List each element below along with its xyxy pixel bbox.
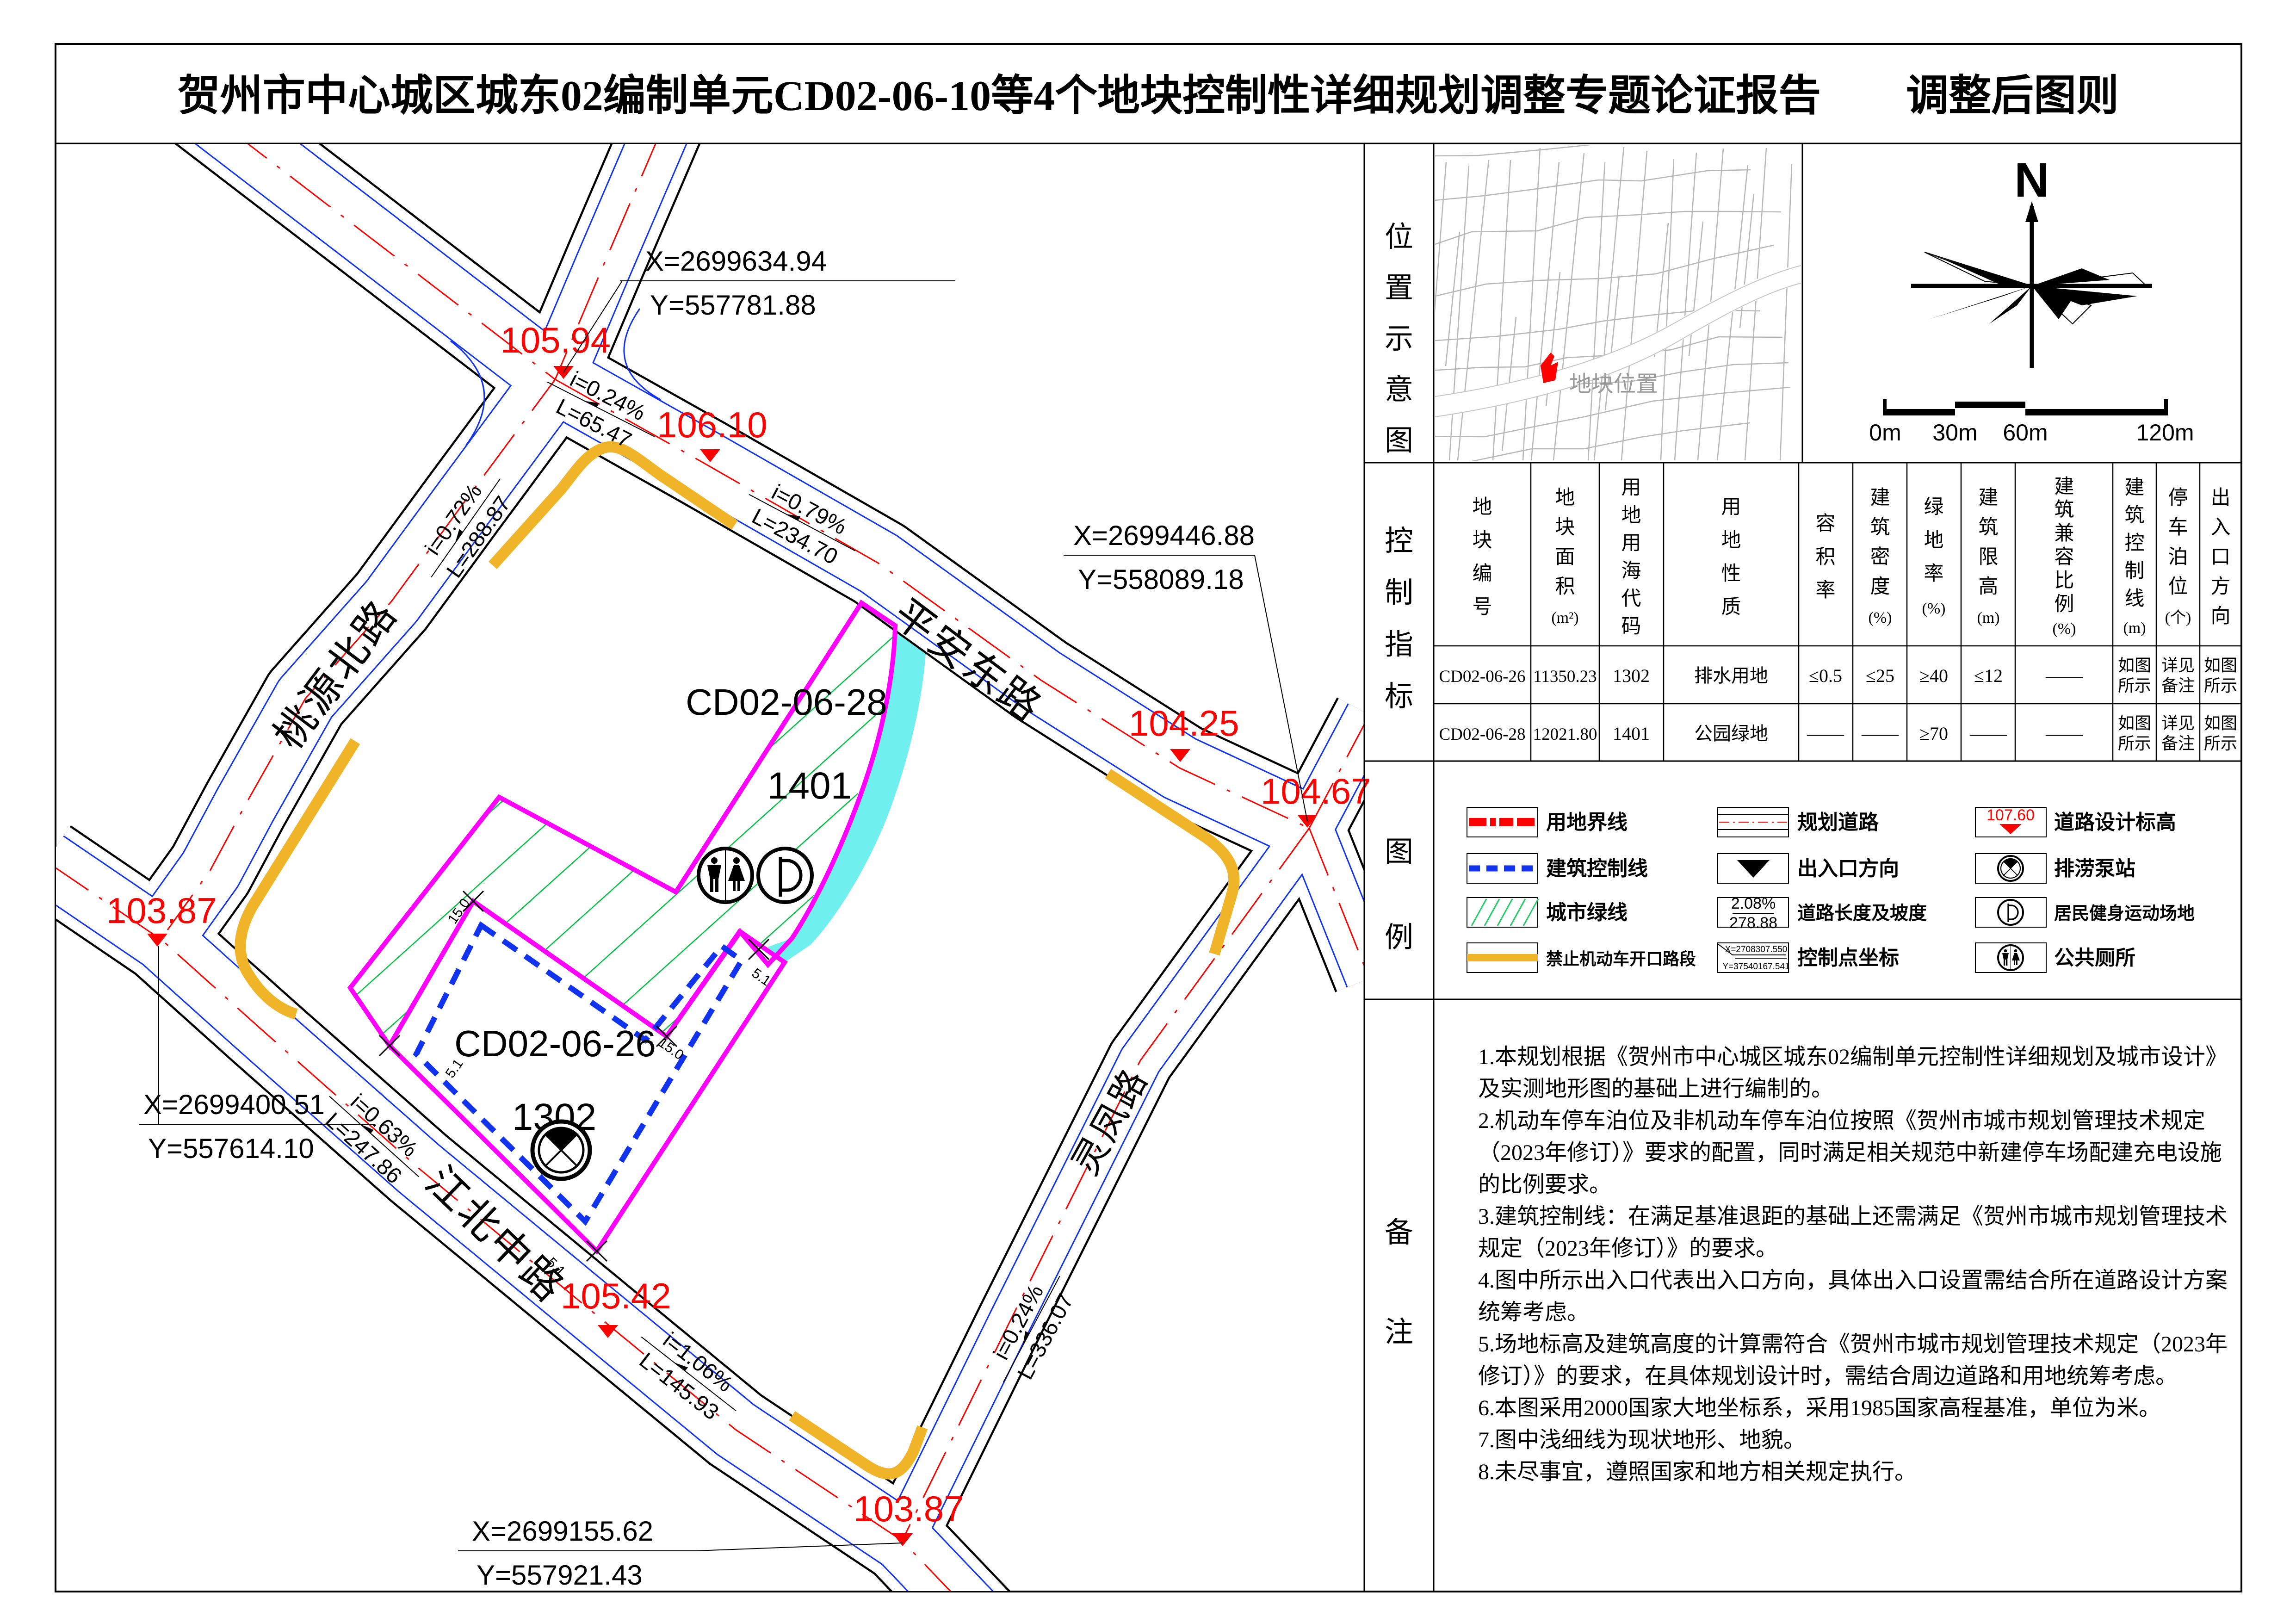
svg-text:60m: 60m — [2003, 420, 2048, 446]
svg-text:105.94: 105.94 — [500, 320, 611, 360]
svg-text:出入口方向: 出入口方向 — [1797, 857, 1899, 880]
svg-text:建筑控制线: 建筑控制线 — [1546, 857, 1648, 880]
svg-text:泊: 泊 — [2168, 546, 2188, 568]
svg-text:地: 地 — [1621, 505, 1641, 527]
svg-text:5.场地标高及建筑高度的计算需符合《贺州市城市规划管理技术规: 5.场地标高及建筑高度的计算需符合《贺州市城市规划管理技术规定（2023年 — [1478, 1332, 2228, 1357]
svg-text:率: 率 — [1924, 563, 1944, 585]
svg-text:(个): (个) — [2165, 609, 2191, 626]
svg-text:规定（2023年修订）》的要求。: 规定（2023年修订）》的要求。 — [1478, 1236, 1778, 1261]
svg-text:代: 代 — [1621, 588, 1641, 610]
svg-text:如图: 如图 — [2118, 714, 2151, 732]
svg-text:——: —— — [1807, 723, 1844, 744]
svg-text:口: 口 — [2211, 546, 2231, 568]
svg-text:块: 块 — [1473, 530, 1492, 551]
svg-text:4.图中所示出入口代表出入口方向，具体出入口设置需结合所在道: 4.图中所示出入口代表出入口方向，具体出入口设置需结合所在道路设计方案 — [1478, 1268, 2228, 1293]
svg-text:CD02-06-28: CD02-06-28 — [686, 681, 887, 723]
svg-text:积: 积 — [1555, 576, 1575, 598]
svg-text:位: 位 — [1385, 222, 1413, 253]
svg-text:道路长度及坡度: 道路长度及坡度 — [1797, 903, 1927, 923]
svg-text:兼: 兼 — [2055, 523, 2074, 545]
svg-text:建: 建 — [1979, 487, 1999, 509]
svg-text:所示: 所示 — [2118, 676, 2151, 695]
svg-text:用地界线: 用地界线 — [1546, 811, 1628, 834]
svg-text:规划道路: 规划道路 — [1797, 811, 1879, 834]
svg-text:12021.80: 12021.80 — [1533, 725, 1597, 744]
svg-text:11350.23: 11350.23 — [1533, 667, 1597, 686]
svg-text:N: N — [2014, 153, 2049, 207]
svg-text:如图: 如图 — [2204, 714, 2237, 732]
svg-text:入: 入 — [2211, 517, 2231, 539]
svg-text:贺州市中心城区城东02编制单元CD02-06-10等4个地块: 贺州市中心城区城东02编制单元CD02-06-10等4个地块控制性详细规划调整专… — [178, 72, 2119, 119]
svg-text:块: 块 — [1555, 517, 1575, 539]
svg-text:（2023年修订）》要求的配置，同时满足相关规范中新建停车场: （2023年修订）》要求的配置，同时满足相关规范中新建停车场配建充电设施 — [1478, 1140, 2222, 1165]
svg-text:向: 向 — [2211, 606, 2231, 627]
svg-text:105.42: 105.42 — [561, 1276, 671, 1316]
svg-text:所示: 所示 — [2118, 734, 2151, 753]
svg-text:(%): (%) — [1869, 609, 1892, 626]
svg-text:停: 停 — [2168, 487, 2188, 509]
svg-text:度: 度 — [1870, 576, 1890, 598]
svg-text:278.88: 278.88 — [1729, 914, 1777, 932]
svg-text:注: 注 — [1385, 1317, 1413, 1348]
svg-text:控: 控 — [2125, 533, 2145, 554]
svg-text:120m: 120m — [2136, 420, 2194, 446]
svg-text:置: 置 — [1385, 273, 1413, 304]
svg-text:Y=557921.43: Y=557921.43 — [477, 1560, 643, 1591]
svg-text:X=2699634.94: X=2699634.94 — [645, 246, 827, 277]
svg-text:如图: 如图 — [2118, 656, 2151, 675]
svg-text:(m): (m) — [1977, 609, 1999, 626]
svg-text:用: 用 — [1621, 533, 1641, 554]
svg-text:限: 限 — [1979, 546, 1999, 568]
svg-text:居民健身运动场地: 居民健身运动场地 — [2054, 904, 2195, 923]
svg-text:地: 地 — [1473, 496, 1492, 518]
svg-text:公园绿地: 公园绿地 — [1694, 723, 1768, 744]
svg-text:Y=557614.10: Y=557614.10 — [148, 1133, 314, 1164]
svg-text:容: 容 — [1816, 513, 1836, 535]
svg-text:绿: 绿 — [1924, 496, 1944, 518]
svg-text:104.67: 104.67 — [1261, 771, 1371, 811]
svg-text:≥70: ≥70 — [1919, 723, 1948, 744]
svg-text:城市绿线: 城市绿线 — [1546, 901, 1628, 924]
svg-text:例: 例 — [2055, 594, 2074, 615]
svg-text:7.图中浅细线为现状地形、地貌。: 7.图中浅细线为现状地形、地貌。 — [1478, 1428, 1806, 1452]
svg-text:Y=558089.18: Y=558089.18 — [1078, 564, 1244, 595]
svg-text:排水用地: 排水用地 — [1694, 665, 1768, 686]
svg-text:位: 位 — [2168, 576, 2188, 598]
svg-text:103.87: 103.87 — [106, 890, 217, 931]
svg-text:图: 图 — [1385, 836, 1413, 868]
svg-text:1401: 1401 — [767, 765, 852, 807]
svg-text:CD02-06-28: CD02-06-28 — [1439, 725, 1525, 744]
svg-text:Y=37540167.541: Y=37540167.541 — [1722, 962, 1789, 972]
svg-text:(m): (m) — [2123, 619, 2146, 637]
svg-text:0m: 0m — [1869, 420, 1901, 446]
svg-text:8.未尽事宜，遵照国家和地方相关规定执行。: 8.未尽事宜，遵照国家和地方相关规定执行。 — [1478, 1460, 1917, 1484]
svg-text:标: 标 — [1385, 681, 1413, 712]
svg-text:(m²): (m²) — [1551, 609, 1578, 626]
svg-text:及实测地形图的基础上进行编制的。: 及实测地形图的基础上进行编制的。 — [1478, 1077, 1833, 1101]
svg-text:X=2699446.88: X=2699446.88 — [1073, 520, 1255, 551]
svg-text:筑: 筑 — [1979, 517, 1999, 539]
svg-text:道路设计标高: 道路设计标高 — [2054, 811, 2176, 834]
svg-text:车: 车 — [2168, 517, 2188, 539]
svg-text:比: 比 — [2055, 570, 2074, 592]
svg-text:控: 控 — [1385, 526, 1413, 557]
svg-text:2.机动车停车泊位及非机动车停车泊位按照《贺州市城市规划管理: 2.机动车停车泊位及非机动车停车泊位按照《贺州市城市规划管理技术规定 — [1478, 1109, 2205, 1133]
svg-text:用: 用 — [1721, 496, 1741, 518]
svg-text:质: 质 — [1721, 596, 1741, 618]
svg-text:统筹考虑。: 统筹考虑。 — [1478, 1300, 1589, 1325]
svg-text:——: —— — [1969, 723, 2007, 744]
svg-text:1302: 1302 — [1613, 665, 1650, 686]
svg-text:X=2708307.550: X=2708307.550 — [1725, 945, 1788, 954]
svg-text:≤25: ≤25 — [1866, 665, 1894, 686]
svg-text:指: 指 — [1385, 629, 1413, 661]
svg-text:积: 积 — [1816, 546, 1836, 568]
svg-text:——: —— — [2045, 665, 2083, 686]
svg-text:编: 编 — [1473, 563, 1492, 585]
svg-text:建: 建 — [2125, 477, 2145, 499]
svg-text:107.60: 107.60 — [1987, 806, 2035, 824]
svg-text:例: 例 — [1385, 922, 1413, 954]
svg-text:修订）》的要求，在具体规划设计时，需结合周边道路和用地统筹考: 修订）》的要求，在具体规划设计时，需结合周边道路和用地统筹考虑。 — [1478, 1364, 2178, 1388]
svg-text:X=2699155.62: X=2699155.62 — [472, 1516, 653, 1547]
svg-text:制: 制 — [2125, 560, 2145, 582]
svg-text:地: 地 — [1924, 530, 1944, 551]
svg-text:3.建筑控制线：在满足基准退距的基础上还需满足《贺州市城市规: 3.建筑控制线：在满足基准退距的基础上还需满足《贺州市城市规划管理技术 — [1478, 1204, 2228, 1229]
svg-text:的比例要求。: 的比例要求。 — [1478, 1172, 1611, 1197]
svg-text:CD02-06-26: CD02-06-26 — [1439, 667, 1525, 686]
svg-text:号: 号 — [1473, 596, 1492, 618]
svg-text:(%): (%) — [2053, 620, 2076, 638]
svg-text:如图: 如图 — [2204, 656, 2237, 675]
svg-text:制: 制 — [1385, 577, 1413, 609]
svg-text:104.25: 104.25 — [1129, 703, 1239, 743]
svg-text:容: 容 — [2055, 546, 2074, 568]
svg-text:备注: 备注 — [2161, 676, 2195, 695]
svg-text:备注: 备注 — [2161, 734, 2195, 753]
svg-text:Y=557781.88: Y=557781.88 — [650, 290, 816, 321]
svg-text:≤0.5: ≤0.5 — [1809, 665, 1842, 686]
svg-text:——: —— — [1861, 723, 1899, 744]
svg-text:地块位置: 地块位置 — [1569, 372, 1658, 396]
svg-text:103.87: 103.87 — [854, 1488, 964, 1529]
svg-text:图: 图 — [1385, 425, 1413, 457]
svg-text:30m: 30m — [1932, 420, 1977, 446]
svg-text:线: 线 — [2125, 588, 2145, 610]
svg-text:——: —— — [2045, 723, 2083, 744]
svg-text:出: 出 — [2211, 487, 2231, 509]
svg-text:示: 示 — [1385, 323, 1413, 355]
svg-text:海: 海 — [1621, 560, 1641, 582]
svg-text:控制点坐标: 控制点坐标 — [1797, 947, 1899, 969]
svg-text:码: 码 — [1621, 616, 1641, 638]
svg-text:所示: 所示 — [2204, 734, 2237, 753]
svg-text:(%): (%) — [1922, 600, 1946, 617]
svg-text:备: 备 — [1385, 1217, 1413, 1249]
svg-text:1401: 1401 — [1613, 723, 1650, 744]
svg-text:所示: 所示 — [2204, 676, 2237, 695]
svg-text:地: 地 — [1555, 487, 1575, 509]
svg-text:公共厕所: 公共厕所 — [2054, 947, 2135, 969]
svg-text:6.本图采用2000国家大地坐标系，采用1985国家高程基准: 6.本图采用2000国家大地坐标系，采用1985国家高程基准，单位为米。 — [1478, 1396, 2161, 1420]
svg-text:详见: 详见 — [2161, 714, 2195, 732]
svg-text:≥40: ≥40 — [1919, 665, 1948, 686]
svg-text:性: 性 — [1721, 563, 1741, 585]
svg-text:106.10: 106.10 — [657, 404, 767, 445]
svg-text:用: 用 — [1621, 477, 1641, 499]
svg-text:意: 意 — [1385, 374, 1413, 406]
svg-text:率: 率 — [1816, 579, 1836, 601]
svg-text:筑: 筑 — [2055, 499, 2074, 521]
svg-text:详见: 详见 — [2161, 656, 2195, 675]
svg-text:密: 密 — [1870, 546, 1890, 568]
svg-text:建: 建 — [2055, 476, 2074, 498]
svg-text:X=2699400.51: X=2699400.51 — [143, 1089, 325, 1120]
svg-text:CD02-06-26: CD02-06-26 — [454, 1023, 656, 1064]
svg-text:方: 方 — [2211, 576, 2231, 598]
svg-text:≤12: ≤12 — [1974, 665, 2003, 686]
svg-text:2.08%: 2.08% — [1731, 895, 1776, 912]
svg-text:筑: 筑 — [1870, 517, 1890, 539]
svg-text:筑: 筑 — [2125, 505, 2145, 527]
svg-text:面: 面 — [1555, 546, 1575, 568]
svg-text:禁止机动车开口路段: 禁止机动车开口路段 — [1546, 949, 1696, 968]
svg-text:地: 地 — [1721, 530, 1741, 551]
svg-text:高: 高 — [1979, 576, 1999, 598]
svg-text:1.本规划根据《贺州市中心城区城东02编制单元控制性详细规划: 1.本规划根据《贺州市中心城区城东02编制单元控制性详细规划及城市设计》 — [1478, 1045, 2228, 1069]
svg-text:排涝泵站: 排涝泵站 — [2054, 857, 2135, 880]
svg-text:建: 建 — [1870, 487, 1890, 509]
